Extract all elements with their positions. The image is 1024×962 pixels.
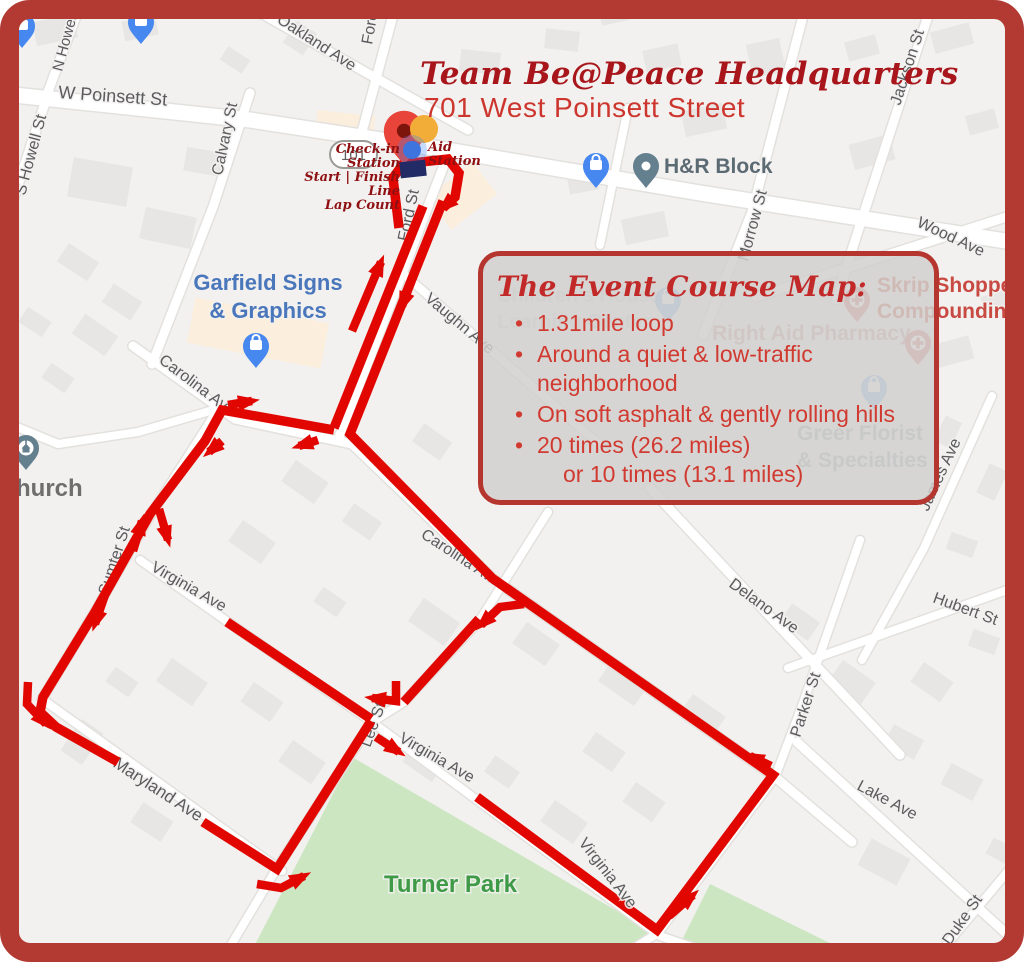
note-line: Start | Finish Line	[288, 171, 400, 199]
course-route-segment	[299, 440, 318, 446]
poi-label-line: H&R Block	[664, 155, 773, 178]
note-line: Lap Count	[288, 199, 400, 213]
event-course-map-flyer: 101W Poinsett StOakland AveForeN HowellS…	[0, 0, 1024, 962]
poi-label-line: Garfield Signs	[193, 270, 342, 295]
course-bullet: 20 times (26.2 miles)or 10 times (13.1 m…	[537, 431, 922, 489]
course-bullet: Around a quiet & low-traffic neighborhoo…	[537, 340, 922, 398]
start-finish-marker-icon	[403, 141, 421, 159]
course-box-title: The Event Course Map:	[497, 270, 922, 303]
course-info-box: The Event Course Map: 1.31mile loopAroun…	[478, 251, 939, 505]
poi-label-church: hurch	[16, 475, 83, 502]
poi-label-line: hurch	[16, 475, 83, 502]
aid-station-label: AidStation	[428, 141, 481, 169]
building	[544, 28, 580, 51]
course-bullet-continuation: or 10 times (13.1 miles)	[563, 460, 922, 489]
note-line: Check-in Station	[288, 143, 400, 171]
course-bullet: 1.31mile loop	[537, 309, 922, 338]
course-bullet-list: 1.31mile loopAround a quiet & low-traffi…	[497, 309, 922, 489]
note-line: Station	[428, 155, 481, 169]
headquarters-address: 701 West Poinsett Street	[424, 92, 745, 124]
course-bullet: On soft asphalt & gently rolling hills	[537, 400, 922, 429]
poi-label-line: & Graphics	[209, 298, 326, 323]
map-clip: 101W Poinsett StOakland AveForeN HowellS…	[13, 13, 1011, 949]
note-line: Aid	[428, 141, 481, 155]
course-route-segment	[228, 401, 252, 405]
lap-count-marker-icon	[399, 160, 427, 179]
checkin-start-finish-label: Check-in StationStart | Finish LineLap C…	[288, 143, 400, 213]
headquarters-title: Team Be@Peace Headquarters	[420, 56, 959, 92]
poi-label-hr-block: H&R Block	[664, 155, 773, 178]
poi-label-turner-park: Turner Park	[384, 871, 518, 898]
poi-label-line: Turner Park	[384, 871, 518, 898]
